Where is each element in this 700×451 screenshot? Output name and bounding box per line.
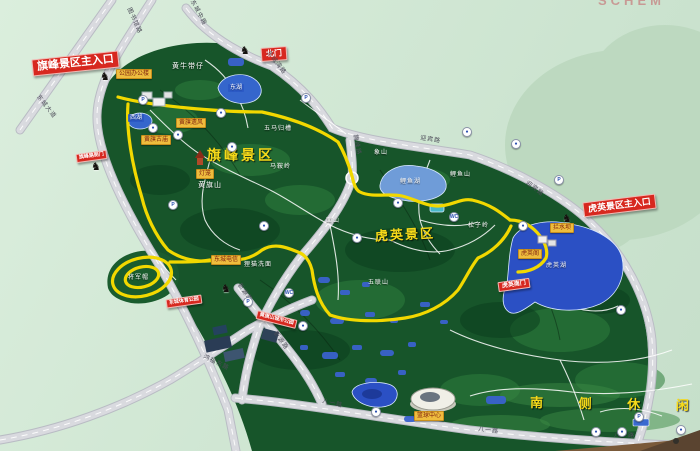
parking-icon: P <box>168 200 178 210</box>
label-west-lake: 西湖 <box>128 114 144 122</box>
poi-icon: ● <box>617 427 627 437</box>
label-limaoximian: 狸猫洗面 <box>244 262 272 268</box>
poi-icon: ● <box>298 321 308 331</box>
label-huangqishan: 黄旗山 <box>198 182 222 189</box>
poi-icon: ● <box>352 233 362 243</box>
photo-title-fragment: SCHEM <box>598 0 665 7</box>
parking-icon: P <box>138 95 148 105</box>
label-wumaguicao: 五马归槽 <box>264 126 292 132</box>
parking-icon: P <box>243 297 253 307</box>
parking-icon: P <box>554 175 564 185</box>
poi-icon: ● <box>216 108 226 118</box>
label-jiangjunmao: 将军帽 <box>128 275 149 281</box>
label-basketball-center: 篮球中心 <box>414 411 444 421</box>
label-wulianshan: 五联山 <box>368 280 389 286</box>
poi-icon: ● <box>227 142 237 152</box>
poi-icon: ● <box>616 305 626 315</box>
parking-icon: P <box>634 412 644 422</box>
gate-pictogram-sports: ♞ <box>221 284 231 295</box>
label-huangqi-temple: 黄旗古庙 <box>141 135 171 145</box>
park-map-photo: SCHEM 旗峰景区主入口 北门 旗峰路侧门 虎英景区主入口 虎英南门 东城体育… <box>0 0 700 451</box>
gate-pictogram-north: ♞ <box>240 46 250 57</box>
poi-icon: ● <box>393 198 403 208</box>
title-qifeng-area: 旗峰景区 <box>207 148 275 162</box>
gate-pictogram-huying: ♞ <box>562 214 572 225</box>
label-liyushan: 鲤鱼山 <box>450 172 471 178</box>
poi-icon: ● <box>259 221 269 231</box>
label-east-lake: 东湖 <box>228 84 244 92</box>
poi-icon: ● <box>462 127 472 137</box>
label-songziling: 松子岭 <box>468 223 489 229</box>
label-huying-lake: 虎英湖 <box>546 263 567 269</box>
label-liyu-lake: 鲤鱼湖 <box>400 179 421 185</box>
poi-icon: ● <box>511 139 521 149</box>
label-lantern: 灯笼 <box>196 169 214 179</box>
label-maanling: 马鞍岭 <box>270 164 291 170</box>
toilet-icon: WC <box>284 288 294 298</box>
label-dongcheng-telecom: 东城电信 <box>211 255 241 265</box>
poi-icon: ● <box>173 130 183 140</box>
parking-icon: P <box>301 93 311 103</box>
title-south-leisure-area: 南 侧 休 闲 区 <box>530 396 700 413</box>
poi-icon: ● <box>591 427 601 437</box>
poi-icon: ● <box>676 425 686 435</box>
poi-icon: ● <box>371 407 381 417</box>
label-huying-pavilion: 虎英阁 <box>518 249 542 259</box>
label-xiangshan: 象山 <box>374 150 388 156</box>
label-mianshan: 面山 <box>326 218 340 224</box>
label-huangniudaizai: 黄牛带仔 <box>172 63 204 70</box>
label-huangqi-heritage: 黄旗遗风 <box>176 118 206 128</box>
poi-icon: ● <box>518 221 528 231</box>
poi-icon: ● <box>148 123 158 133</box>
title-huying-area: 虎英景区 <box>375 226 436 242</box>
dome-stadium <box>410 388 456 412</box>
gate-pictogram-side: ♞ <box>91 162 101 173</box>
toilet-icon: WC <box>449 212 459 222</box>
gate-pictogram-main: ♞ <box>100 72 110 83</box>
label-park-office: 公园办公楼 <box>116 69 152 79</box>
